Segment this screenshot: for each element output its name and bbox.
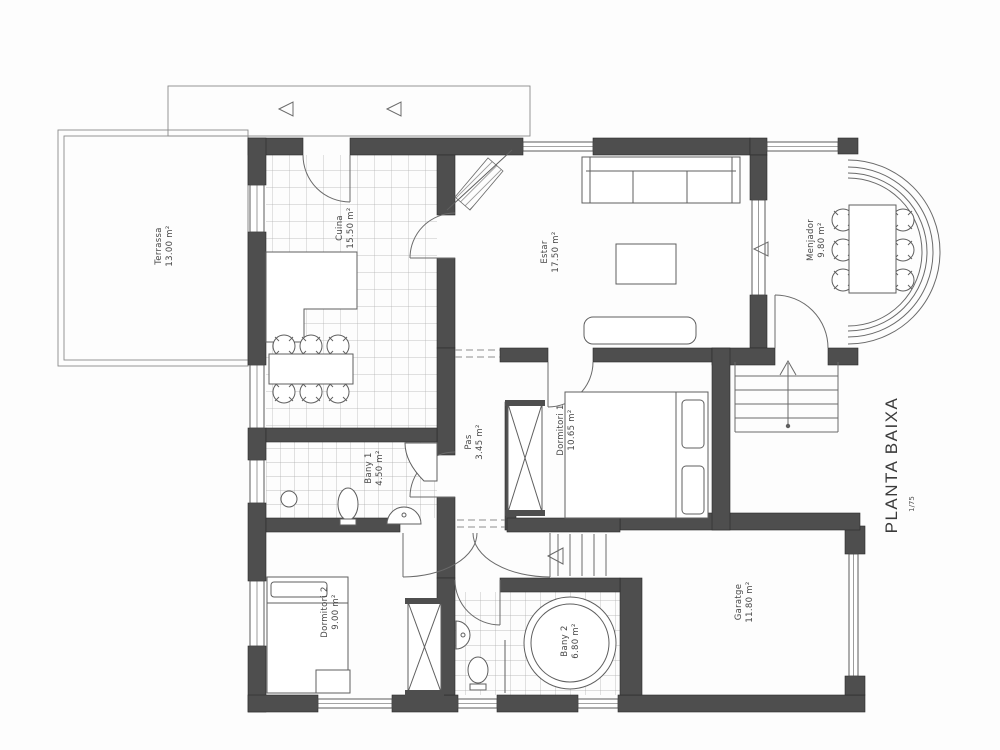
- window: [250, 185, 264, 232]
- floor-plan-drawing: Terrassa13.00 m² Cuina15.50 m² Estar17.5…: [0, 0, 1000, 750]
- window: [752, 200, 765, 295]
- round-bathtub: [524, 597, 616, 689]
- room-label-estar: Estar17.50 m²: [540, 231, 561, 272]
- drawing-title: PLANTA BAIXA: [882, 397, 901, 534]
- entrance-triangle-icon: [387, 102, 401, 116]
- staircase: [735, 361, 838, 432]
- room-label-menjador: Menjador9.80 m²: [806, 219, 827, 261]
- entrance-triangle-icon: [279, 102, 293, 116]
- pillow: [682, 466, 704, 514]
- pillow: [682, 400, 704, 448]
- window: [250, 460, 264, 503]
- window: [318, 699, 392, 708]
- terrace-outer-border: [58, 130, 248, 366]
- corridor-steps: [548, 534, 606, 576]
- dining-table: [849, 205, 896, 293]
- wardrobe: [405, 598, 444, 696]
- room-label-pas: Pas3.45 m²: [464, 424, 485, 459]
- toilet-base: [340, 519, 356, 525]
- dining-room-furniture: [832, 205, 914, 293]
- door-arc: [775, 295, 828, 348]
- toilet: [468, 657, 488, 683]
- sideboard: [584, 317, 696, 344]
- toilet-base: [470, 684, 486, 690]
- room-label-bany-1: Bany 14.50 m²: [364, 450, 385, 485]
- toilet: [338, 488, 358, 520]
- bidet: [281, 491, 297, 507]
- drawing-scale: 1/75: [908, 496, 916, 512]
- living-room-furniture: [447, 150, 740, 344]
- bedroom2-furniture: [267, 577, 444, 696]
- room-label-dormitori-1: Dormitori 110.65 m²: [556, 404, 577, 456]
- kitchen-table: [269, 354, 353, 384]
- garage-door: [849, 554, 858, 676]
- window: [458, 699, 497, 708]
- porch-floor: [168, 86, 530, 136]
- sofa: [582, 157, 740, 203]
- window: [523, 142, 593, 151]
- drawing-title-block: PLANTA BAIXA 1/75: [882, 397, 916, 534]
- window: [250, 365, 264, 428]
- wardrobe: [505, 400, 545, 516]
- pillow: [271, 582, 327, 597]
- window: [250, 581, 264, 646]
- fireplace: [455, 158, 503, 210]
- double-door-arcs: [403, 533, 550, 577]
- floor-plan-page: Terrassa13.00 m² Cuina15.50 m² Estar17.5…: [0, 0, 1000, 750]
- window: [767, 142, 838, 151]
- bedside-bench: [316, 670, 350, 693]
- room-label-bany-2: Bany 26.80 m²: [560, 623, 581, 658]
- window: [578, 699, 618, 708]
- room-label-terrassa: Terrassa13.00 m²: [154, 225, 175, 266]
- room-label-garatge: Garatge11.80 m²: [734, 581, 755, 622]
- bedroom1-furniture: [505, 392, 708, 518]
- coffee-table: [616, 244, 676, 284]
